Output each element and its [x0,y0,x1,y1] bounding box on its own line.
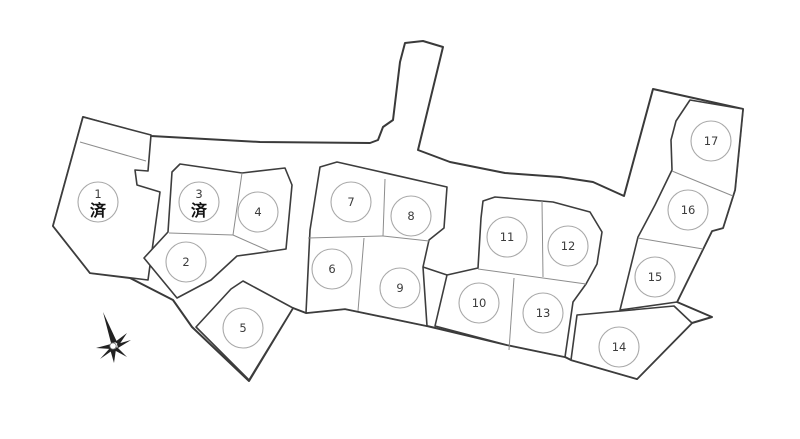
block-outline [306,162,447,326]
north-compass-icon [96,312,131,363]
lot-map-page: 1済23済4567891011121314151617 [0,0,800,439]
block-lot1 [53,117,160,280]
lot-number: 16 [681,203,696,217]
block-lots-2-3-4 [144,164,292,298]
lot-number: 14 [612,340,627,354]
lot-number: 15 [648,270,663,284]
lot-number: 11 [500,230,515,244]
road-end-line [423,267,447,275]
lot-sold-label: 済 [90,201,107,220]
lot-number: 7 [347,195,354,209]
lot-number: 12 [561,239,576,253]
lot-number: 10 [472,296,487,310]
lot-number: 5 [239,321,246,335]
block-lot14 [571,306,692,379]
lot-number: 1 [94,187,101,201]
lot-number: 8 [407,209,414,223]
block-lots-6-7-8-9 [306,162,447,326]
lot-number: 9 [396,281,403,295]
block-outline [144,164,292,298]
block-outline [53,117,160,280]
lot-number: 13 [536,306,551,320]
lot-number: 2 [182,255,189,269]
lot-number: 3 [195,187,202,201]
lot-number: 4 [254,205,261,219]
lot-number: 17 [704,134,719,148]
lot-map-canvas: 1済23済4567891011121314151617 [0,0,800,439]
lot-sold-label: 済 [191,201,208,220]
lot-number: 6 [328,262,335,276]
